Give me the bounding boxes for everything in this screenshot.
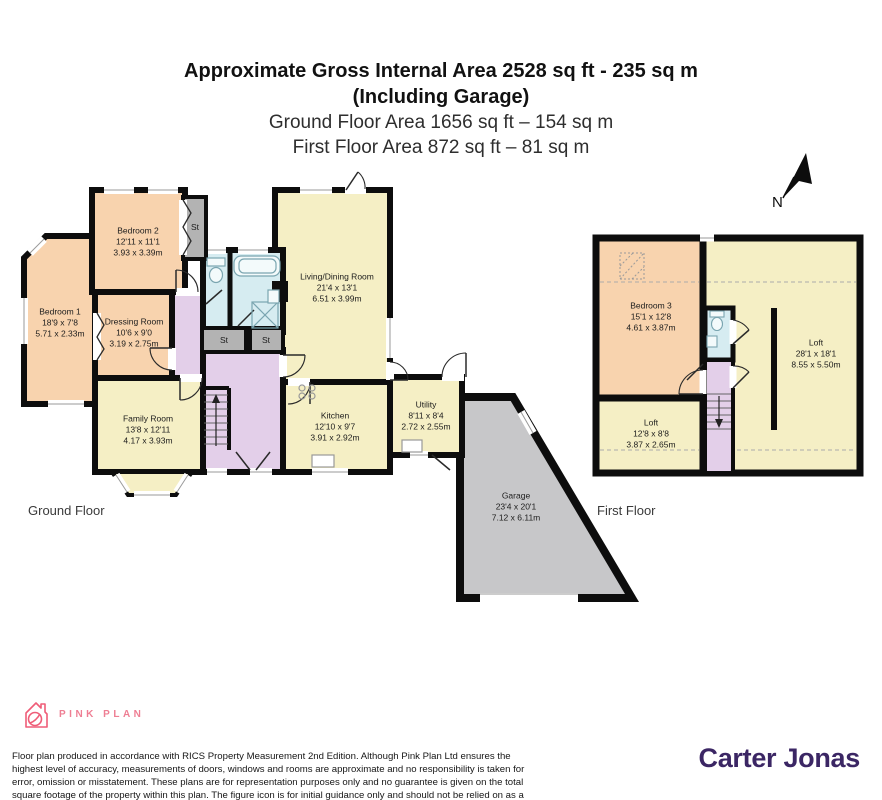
pink-plan-house-icon [26, 703, 47, 727]
pink-plan-brand: PINK PLAN [59, 709, 144, 720]
loft-wall-stub [771, 308, 777, 430]
hallway-lower-shape [203, 350, 283, 472]
toilet-icon [710, 311, 724, 317]
hallway-upper-shape [172, 292, 203, 378]
north-arrow-icon [783, 153, 812, 198]
toilet-icon [207, 258, 225, 266]
room-label-loft-small: Loft 12'8 x 8'8 3.87 x 2.65m [626, 417, 675, 450]
room-label-bedroom3: Bedroom 3 15'1 x 12'8 4.61 x 3.87m [626, 300, 675, 333]
ground-floor-caption: Ground Floor [28, 503, 105, 518]
room-label-family: Family Room 13'8 x 12'11 4.17 x 3.93m [123, 413, 173, 446]
room-label-living-dining: Living/Dining Room 21'4 x 13'1 6.51 x 3.… [300, 271, 374, 304]
disclaimer-text: Floor plan produced in accordance with R… [12, 750, 538, 800]
closet-label-left: St [220, 335, 228, 345]
room-label-kitchen: Kitchen 12'10 x 9'7 3.91 x 2.92m [310, 410, 359, 443]
basin-icon [707, 336, 717, 347]
room-label-garage: Garage 23'4 x 20'1 7.12 x 6.11m [492, 490, 541, 523]
sink-icon [312, 455, 334, 467]
toilet-icon [210, 268, 223, 283]
room-label-dressing: Dressing Room 10'6 x 9'0 3.19 x 2.75m [105, 316, 164, 349]
basin-icon [268, 290, 279, 303]
floorplan-page: Approximate Gross Internal Area 2528 sq … [0, 0, 882, 800]
north-label: N [772, 194, 783, 211]
toilet-icon [712, 318, 723, 331]
carter-jonas-logo: Carter Jonas [699, 743, 860, 774]
sink-icon [402, 440, 422, 452]
room-label-utility: Utility 8'11 x 8'4 2.72 x 2.55m [401, 399, 450, 432]
closet-label-right: St [262, 335, 270, 345]
room-label-bedroom2: Bedroom 2 12'11 x 11'1 3.93 x 3.39m [113, 225, 162, 258]
closet-label-top: St [191, 222, 199, 232]
first-floor-caption: First Floor [597, 503, 656, 518]
room-label-bedroom1: Bedroom 1 18'9 x 7'8 5.71 x 2.33m [35, 306, 84, 339]
room-label-loft-main: Loft 28'1 x 18'1 8.55 x 5.50m [791, 337, 840, 370]
